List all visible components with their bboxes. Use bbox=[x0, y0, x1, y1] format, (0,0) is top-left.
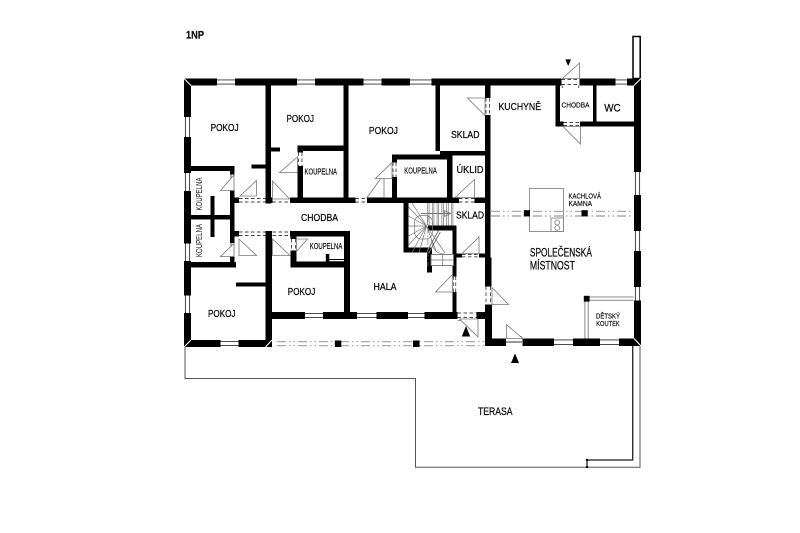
svg-text:SPOLEČENSKÁ: SPOLEČENSKÁ bbox=[530, 244, 592, 259]
svg-text:WC: WC bbox=[604, 103, 621, 115]
svg-text:POKOJ: POKOJ bbox=[369, 126, 398, 137]
svg-text:KOUPELNA: KOUPELNA bbox=[310, 242, 343, 251]
svg-text:SKLAD: SKLAD bbox=[456, 211, 484, 222]
svg-text:ÚKLID: ÚKLID bbox=[457, 163, 484, 176]
svg-text:KOUPELNA: KOUPELNA bbox=[404, 167, 437, 176]
svg-text:MÍSTNOST: MÍSTNOST bbox=[530, 258, 575, 273]
svg-text:POKOJ: POKOJ bbox=[288, 287, 316, 298]
svg-text:KOUPELNA: KOUPELNA bbox=[195, 223, 204, 257]
svg-text:KOUTEK: KOUTEK bbox=[596, 319, 620, 328]
svg-text:KUCHYNĚ: KUCHYNĚ bbox=[499, 100, 542, 113]
svg-text:POKOJ: POKOJ bbox=[211, 123, 239, 134]
svg-text:KOUPELNA: KOUPELNA bbox=[305, 167, 338, 176]
svg-text:CHODBA: CHODBA bbox=[562, 101, 591, 110]
svg-text:KOUPELNA: KOUPELNA bbox=[195, 177, 204, 211]
svg-text:TERASA: TERASA bbox=[478, 406, 513, 418]
svg-text:1NP: 1NP bbox=[186, 30, 204, 42]
svg-text:CHODBA: CHODBA bbox=[301, 213, 338, 224]
svg-text:HALA: HALA bbox=[374, 282, 397, 293]
svg-text:KAMNA: KAMNA bbox=[569, 199, 593, 208]
svg-text:POKOJ: POKOJ bbox=[208, 309, 236, 320]
svg-text:POKOJ: POKOJ bbox=[287, 114, 315, 125]
svg-text:SKLAD: SKLAD bbox=[451, 130, 480, 141]
